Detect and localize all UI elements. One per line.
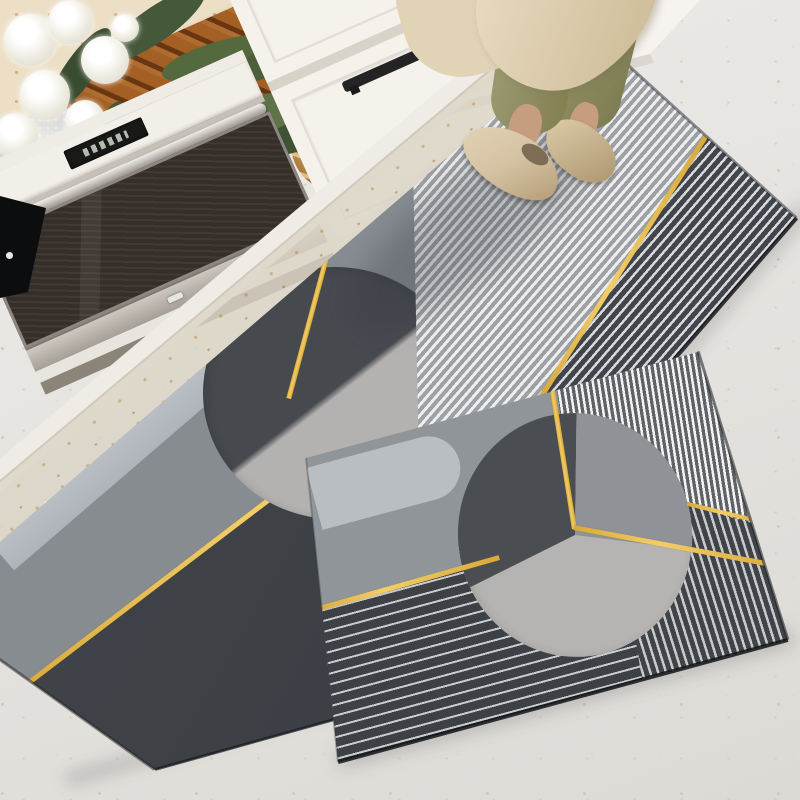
- kitchen-mat-product-photo: { "scene": { "type": "product-lifestyle-…: [0, 0, 800, 800]
- rug2-pale-stadium: [306, 429, 467, 530]
- rug2-circle-dark-quadrant: [442, 398, 708, 672]
- white-flower-cluster: [111, 14, 139, 42]
- white-flower-cluster: [81, 36, 129, 84]
- oven-logo: [167, 292, 184, 304]
- rug2-circle-medium-quadrant: [442, 398, 708, 672]
- white-flower-cluster: [48, 0, 92, 44]
- rug1-edge-left-end: [0, 658, 155, 771]
- rug2-edge-right: [697, 351, 790, 640]
- rug2-gold-line-divider: [687, 502, 772, 526]
- white-flower-cluster: [20, 70, 70, 120]
- rug2-edge-left: [305, 458, 339, 763]
- oven-clock-glow: [82, 130, 129, 157]
- cooktop-indicator-dot: [6, 252, 13, 259]
- rug2-quadrant-circle: [442, 398, 708, 672]
